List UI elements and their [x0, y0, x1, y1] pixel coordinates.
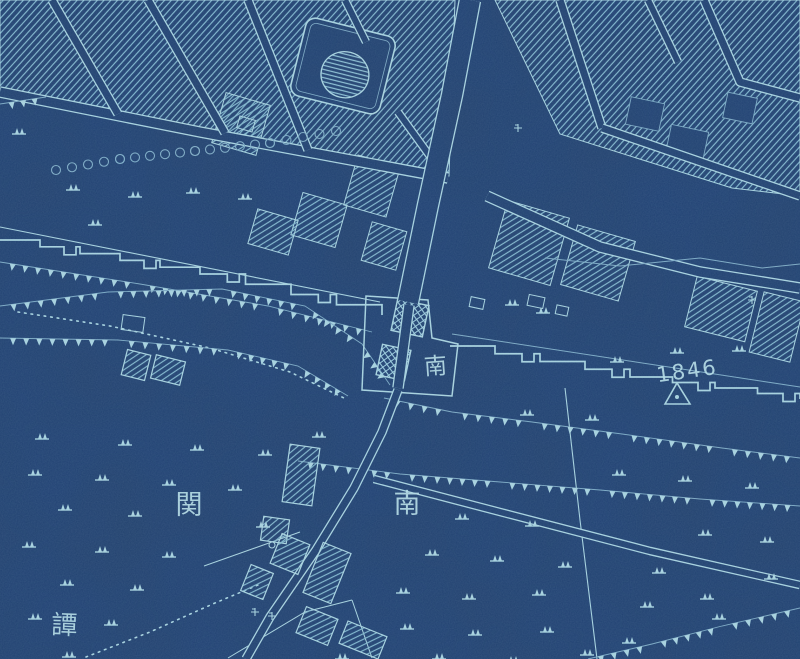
grain-shadow-texture — [0, 0, 800, 659]
blueprint-city-map: 南関南譚1846 — [0, 0, 800, 659]
map-canvas: 南関南譚1846 — [0, 0, 800, 659]
texture-layer — [0, 0, 800, 659]
